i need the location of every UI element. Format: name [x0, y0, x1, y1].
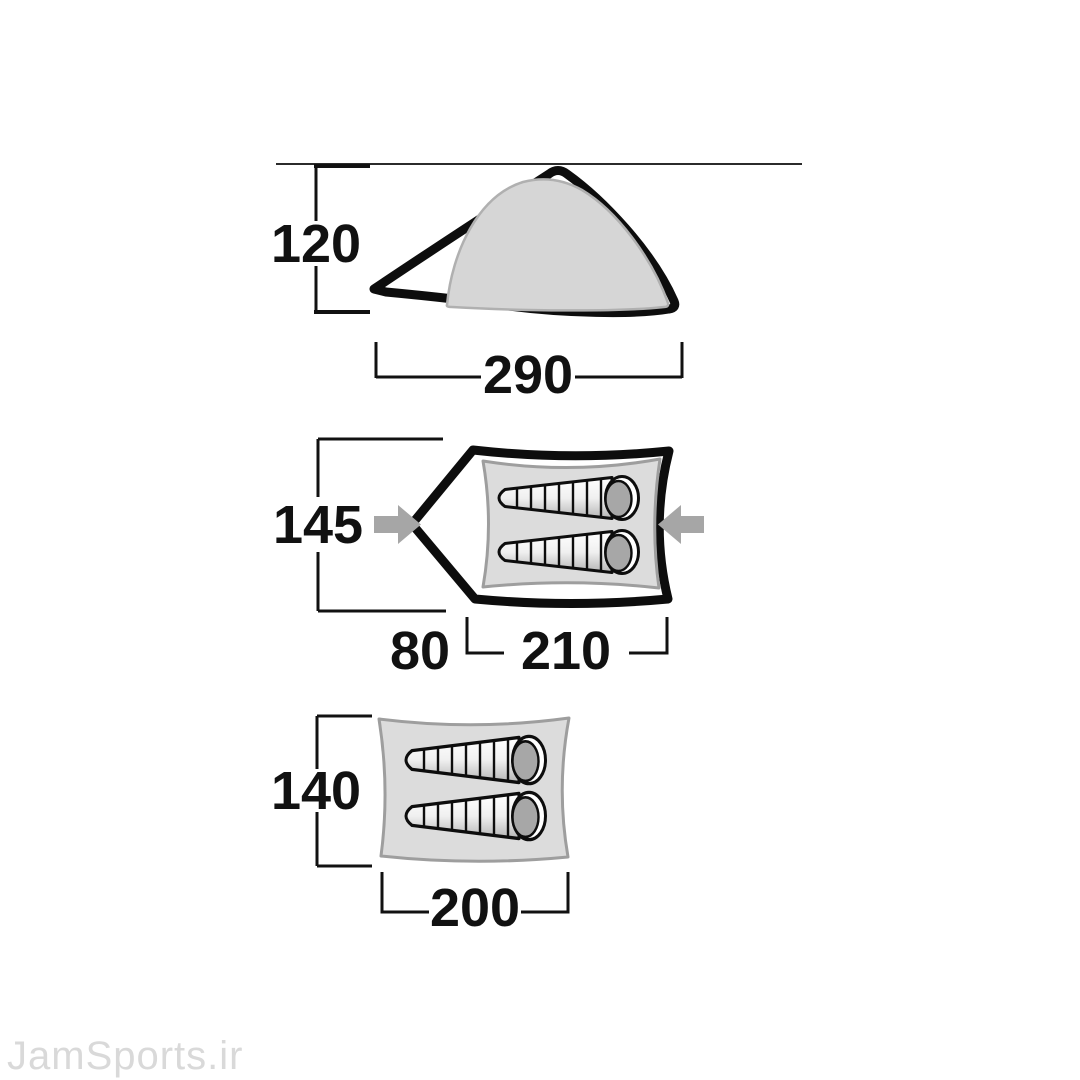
- side-view-diagram: 120 290: [271, 164, 802, 405]
- watermark: JamSports.ir: [7, 1034, 244, 1079]
- floor-width-label: 140: [271, 761, 361, 821]
- tent-dome-canvas: [447, 179, 668, 310]
- vestibule-depth-label: 80: [390, 621, 450, 681]
- length-dimension-200: 200: [382, 872, 568, 938]
- side-height-label: 120: [271, 214, 361, 274]
- inner-length-label: 210: [521, 621, 611, 681]
- top-width-label: 145: [273, 495, 363, 555]
- entrance-arrow-left-icon: [374, 505, 421, 544]
- tent-dimension-diagram: 120 290 145: [0, 0, 1080, 1080]
- floor-length-label: 200: [430, 878, 520, 938]
- top-view-diagram: 145 80 210: [273, 439, 704, 681]
- height-dimension-120: 120: [271, 166, 370, 312]
- length-dimension-210: 210: [467, 617, 667, 681]
- floor-plan-diagram: 140 200: [271, 716, 569, 938]
- side-width-label: 290: [483, 345, 573, 405]
- width-dimension-140: 140: [271, 716, 372, 866]
- diagram-canvas: 120 290 145: [0, 0, 1080, 1080]
- floor-sheet: [379, 718, 569, 861]
- entrance-arrow-right-icon: [658, 505, 704, 544]
- width-dimension-290: 290: [376, 342, 682, 405]
